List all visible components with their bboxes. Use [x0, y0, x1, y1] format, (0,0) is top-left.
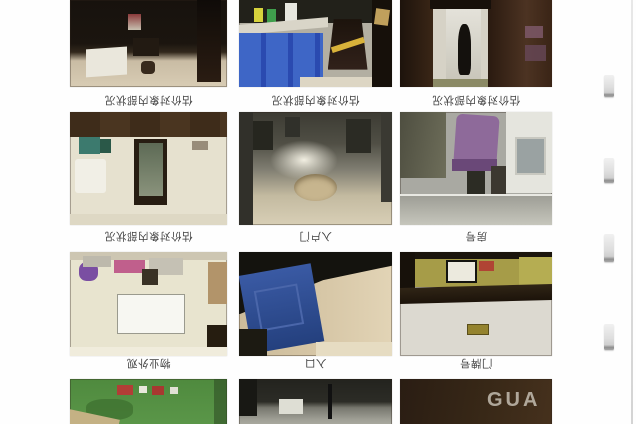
photo-door-plaque-wall: [400, 252, 552, 356]
photo-detail: [525, 26, 543, 38]
photo-detail: [208, 262, 227, 304]
photo-detail: [285, 117, 300, 137]
photo-detail: [519, 257, 552, 286]
photo-kitchen-blue-cabinets: [239, 0, 392, 87]
photo-detail: [114, 260, 145, 272]
photo-detail: [133, 38, 160, 55]
scan-edge-line: [631, 0, 633, 424]
wardrobe: [400, 112, 446, 178]
photo-detail: [381, 112, 392, 202]
photo-caption: 房号: [400, 229, 552, 244]
photo-detail: [239, 379, 257, 416]
binding-hole-mark: [604, 324, 614, 350]
hanging-garment: [458, 24, 472, 74]
photo-detail: [142, 269, 158, 286]
photo-dark-room: [70, 0, 227, 87]
photo-street-scene: [239, 379, 392, 424]
photo-detail: [214, 379, 227, 424]
photo-detail: [346, 119, 370, 153]
photo-detail: [70, 347, 227, 356]
photo-detail: [152, 386, 165, 394]
photo-detail: [479, 261, 494, 270]
photo-detail: [239, 112, 253, 225]
photo-blue-door: [239, 252, 392, 356]
photo-detail: [525, 45, 546, 61]
photo-bedroom: [400, 112, 552, 225]
photo-detail: [433, 79, 488, 87]
photo-green-lawn: [70, 379, 227, 424]
window: [515, 137, 546, 175]
binding-hole-mark: [604, 158, 614, 183]
photo-detail: [446, 260, 477, 283]
photo-detail: [75, 159, 106, 193]
photo-detail: [400, 0, 433, 87]
photo-detail: [117, 385, 133, 395]
photo-detail: [270, 140, 339, 180]
photo-caption: 门牌号: [400, 356, 552, 371]
whiteboard: [117, 294, 185, 334]
photo-whiteboard-room: [70, 252, 227, 356]
photo-detail: [79, 137, 99, 154]
photo-detail: [192, 141, 208, 150]
photo-detail: [400, 194, 552, 196]
photo-detail: [279, 399, 303, 413]
photo-detail: [100, 139, 111, 153]
gua-watermark: GUA: [487, 389, 540, 412]
photo-detail: [70, 214, 227, 225]
round-basin: [294, 174, 337, 201]
photo-detail: [128, 14, 141, 30]
photo-detail: [86, 46, 127, 77]
photo-caption: 入口: [239, 356, 392, 371]
photo-detail: [254, 8, 263, 22]
photo-detail: [316, 342, 393, 356]
photo-caption: 物业外观: [70, 356, 227, 371]
photo-detail: [400, 284, 552, 304]
photo-caption: 估价对象内部状况: [70, 229, 227, 244]
photo-detail: [139, 386, 147, 393]
photo-detail: [254, 284, 304, 332]
photo-detail: [141, 61, 155, 74]
photo-basin-area: [239, 112, 392, 225]
photo-detail: [400, 196, 552, 225]
photo-hallway: [400, 0, 552, 87]
photo-detail: [197, 0, 221, 82]
photo-caption: 入户门: [239, 229, 392, 244]
binding-hole-mark: [604, 234, 614, 262]
photo-detail: [251, 121, 272, 150]
photo-detail: [430, 0, 491, 9]
photo-caption: 估价对象内部状况: [239, 93, 392, 108]
photo-caption: 估价对象内部状况: [70, 93, 227, 108]
photo-detail: [239, 329, 267, 356]
photo-room-mirror-door: [70, 112, 227, 225]
door-plaque: [467, 324, 489, 335]
photo-detail: [170, 387, 178, 394]
photo-detail: [374, 8, 390, 25]
photo-caption: 估价对象内部状况: [400, 93, 552, 108]
photo-detail: [139, 143, 163, 196]
photo-detail: [328, 384, 333, 419]
photo-detail: [70, 112, 227, 137]
scanned-page: 估价对象内部状况 估价对象内部状况 估价对象内部状况 估价对象内部状况 入户门 …: [0, 0, 636, 424]
photo-detail: [83, 256, 111, 266]
binding-hole-mark: [604, 75, 614, 97]
photo-detail: [488, 0, 552, 87]
